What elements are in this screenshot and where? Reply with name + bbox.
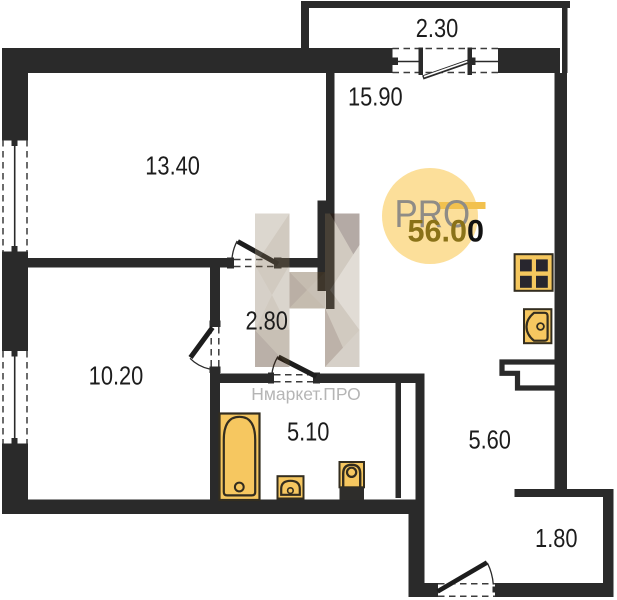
svg-text:15.90: 15.90 bbox=[348, 83, 403, 112]
svg-text:5.60: 5.60 bbox=[468, 426, 510, 455]
svg-text:5.10: 5.10 bbox=[287, 418, 329, 447]
svg-text:10.20: 10.20 bbox=[89, 362, 144, 391]
svg-text:1.80: 1.80 bbox=[535, 524, 577, 553]
svg-text:2.80: 2.80 bbox=[245, 307, 287, 336]
svg-text:Нмаркет.ПРО: Нмаркет.ПРО bbox=[251, 384, 361, 404]
svg-text:56.00: 56.00 bbox=[408, 213, 484, 249]
svg-text:13.40: 13.40 bbox=[145, 152, 200, 181]
svg-text:2.30: 2.30 bbox=[416, 14, 458, 43]
